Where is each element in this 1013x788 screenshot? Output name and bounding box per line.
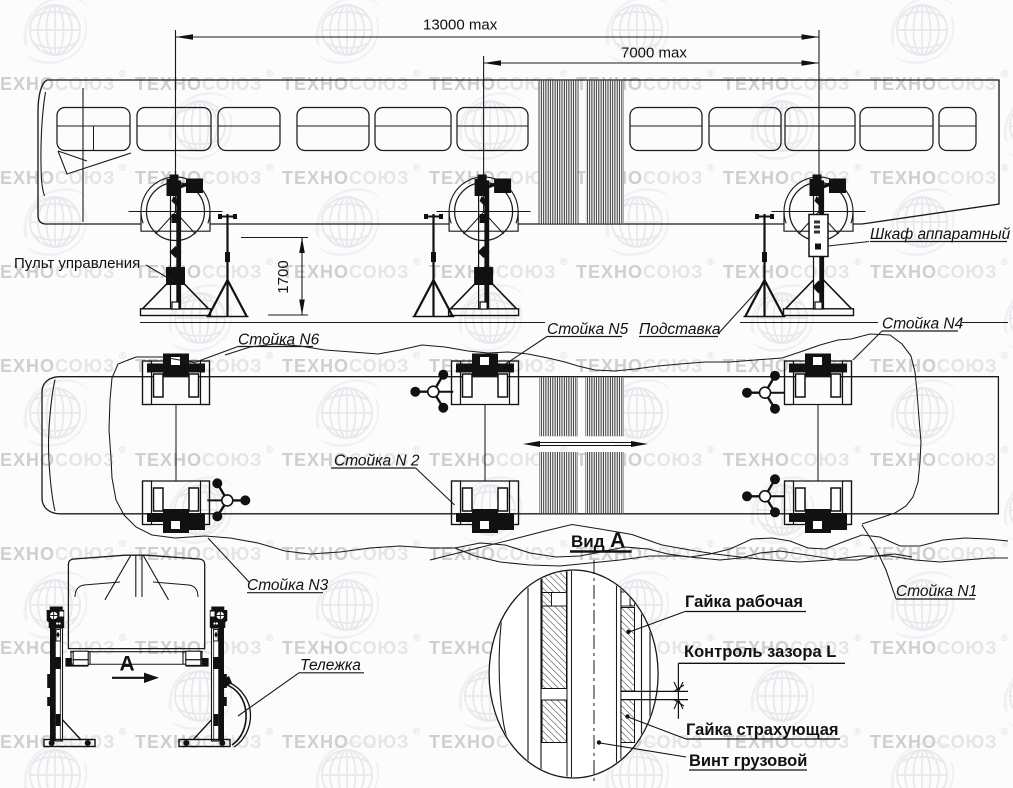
svg-text:Стойка N5: Стойка N5 xyxy=(547,321,629,338)
svg-text:Подставка: Подставка xyxy=(639,321,721,338)
svg-text:Стойка N1: Стойка N1 xyxy=(896,583,977,600)
svg-text:Пульт управления: Пульт управления xyxy=(14,255,140,272)
svg-text:13000 max: 13000 max xyxy=(423,17,498,34)
svg-text:Стойка N4: Стойка N4 xyxy=(882,316,964,333)
svg-text:Стойка N3: Стойка N3 xyxy=(247,577,329,594)
svg-text:Шкаф аппаратный: Шкаф аппаратный xyxy=(870,226,1011,243)
svg-text:Винт грузовой: Винт грузовой xyxy=(689,752,807,770)
svg-text:1700: 1700 xyxy=(275,260,292,293)
svg-text:Вид: Вид xyxy=(571,532,605,551)
svg-text:Гайка страхующая: Гайка страхующая xyxy=(686,721,839,739)
svg-text:Гайка рабочая: Гайка рабочая xyxy=(685,593,803,611)
svg-text:Стойка N 2: Стойка N 2 xyxy=(334,453,420,470)
svg-text:Тележка: Тележка xyxy=(300,657,361,674)
svg-text:А: А xyxy=(120,653,135,676)
svg-text:Контроль зазора L: Контроль зазора L xyxy=(684,643,836,661)
svg-text:7000 max: 7000 max xyxy=(621,45,687,62)
svg-text:А: А xyxy=(610,529,625,552)
